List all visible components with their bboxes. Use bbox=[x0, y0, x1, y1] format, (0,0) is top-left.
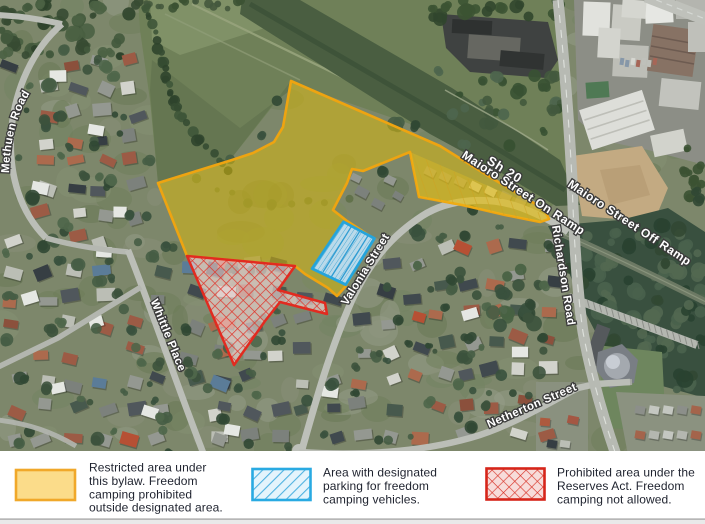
svg-text:Area with designatedparking fo: Area with designatedparking for freedomc… bbox=[323, 466, 437, 507]
